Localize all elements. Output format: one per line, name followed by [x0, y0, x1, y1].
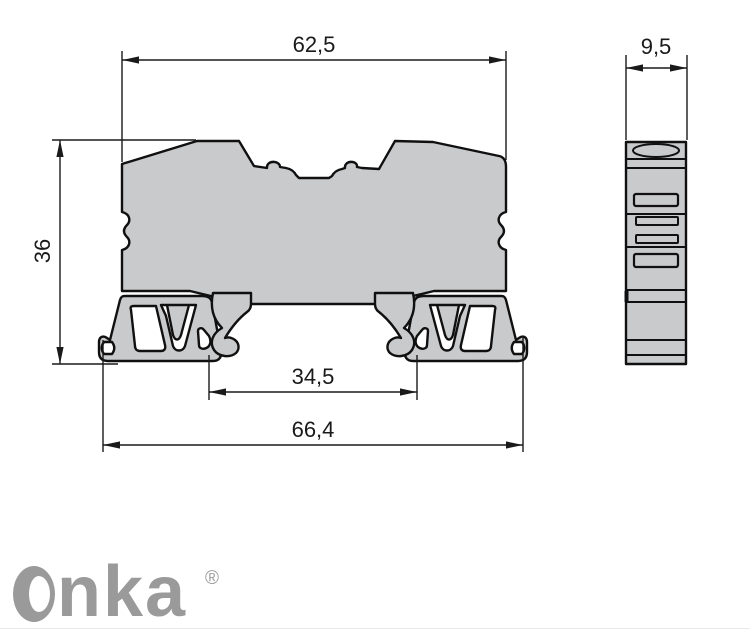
rail-hook-left — [212, 293, 251, 356]
logo-brand-text: nka — [57, 556, 187, 628]
registered-trademark-icon: ® — [205, 568, 219, 590]
side-view — [625, 142, 687, 364]
side-slot-4 — [634, 254, 678, 267]
side-top-opening — [633, 144, 679, 157]
side-latch-mark — [625, 291, 629, 302]
dimension-side-width — [626, 55, 687, 140]
dimension-label-side-width: 9,5 — [596, 35, 716, 59]
brand-logo: nka ® — [13, 556, 233, 626]
logo-o-mark — [13, 566, 55, 622]
terminal-body-outline — [122, 141, 506, 304]
dimension-label-height: 36 — [31, 221, 55, 281]
drawing-canvas — [0, 0, 750, 631]
side-slot-1 — [634, 194, 678, 206]
din-clip-foot-right — [405, 296, 527, 361]
dimension-label-top-width: 62,5 — [254, 33, 374, 57]
front-view — [99, 141, 527, 361]
dimension-label-rail-inner-width: 34,5 — [253, 365, 373, 389]
side-slot-2 — [636, 217, 678, 225]
rail-hook-right — [375, 293, 414, 356]
bottom-divider — [0, 628, 750, 629]
dimension-label-overall-width: 66,4 — [253, 418, 373, 442]
technical-drawing-page: 62,5 9,5 36 34,5 66,4 nka ® — [0, 0, 750, 631]
din-clip-foot-left — [99, 296, 221, 361]
logo-o-counter — [29, 576, 50, 612]
side-slot-3 — [636, 235, 678, 243]
